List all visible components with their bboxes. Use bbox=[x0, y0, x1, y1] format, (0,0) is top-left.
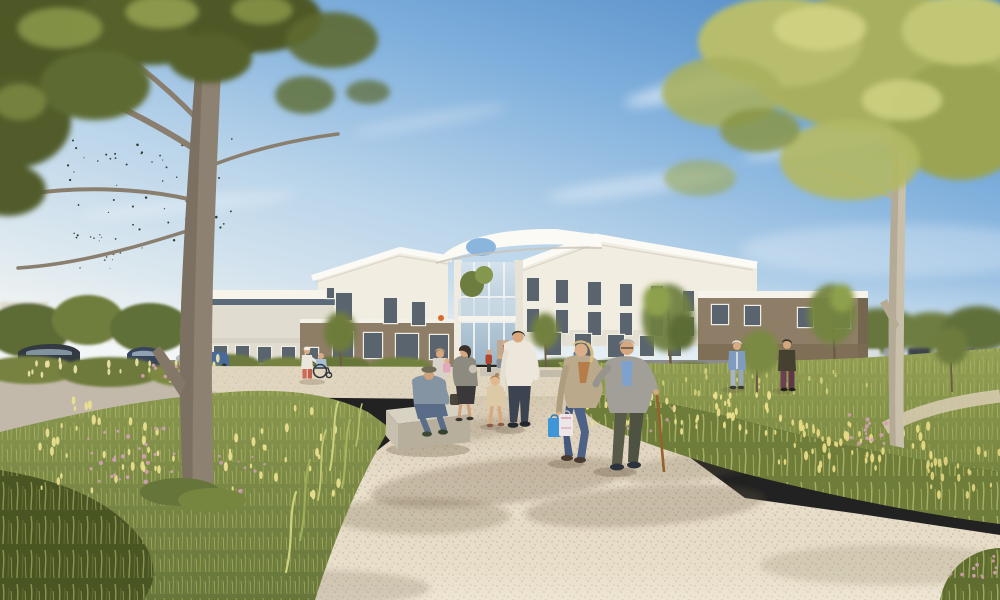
balcony-slab bbox=[458, 316, 516, 321]
scene-canvas bbox=[0, 0, 1000, 600]
orange-roof-accent bbox=[438, 315, 444, 321]
tree-canopy bbox=[662, 0, 1000, 200]
architectural-rendering bbox=[0, 0, 1000, 600]
balcony-glass-rail bbox=[458, 299, 516, 316]
